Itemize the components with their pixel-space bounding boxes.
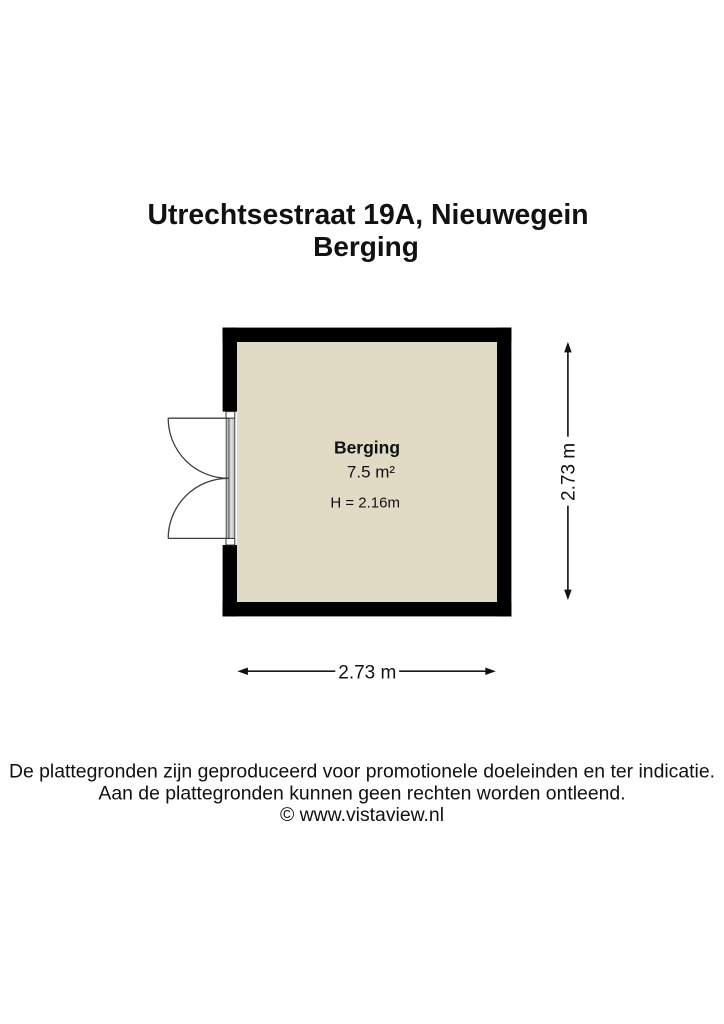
svg-text:7.5 m²: 7.5 m² <box>347 463 396 482</box>
svg-text:Berging: Berging <box>313 231 419 262</box>
svg-text:De plattegronden zijn geproduc: De plattegronden zijn geproduceerd voor … <box>9 761 715 783</box>
svg-text:Berging: Berging <box>334 438 400 458</box>
svg-text:Utrechtsestraat 19A, Nieuwegei: Utrechtsestraat 19A, Nieuwegein <box>147 199 588 231</box>
svg-text:© www.vistaview.nl: © www.vistaview.nl <box>280 804 444 826</box>
svg-text:H = 2.16m: H = 2.16m <box>330 494 400 511</box>
svg-text:2.73 m: 2.73 m <box>558 443 579 501</box>
svg-text:Aan de plattegronden kunnen ge: Aan de plattegronden kunnen geen rechten… <box>98 782 625 804</box>
svg-text:2.73 m: 2.73 m <box>338 663 396 684</box>
